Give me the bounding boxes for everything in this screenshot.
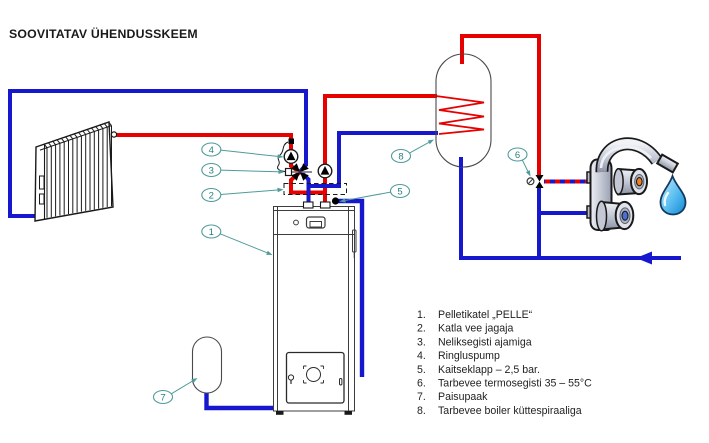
svg-text:Katla vee jagaja: Katla vee jagaja: [438, 323, 513, 335]
svg-text:Pelletikatel „PELLE“: Pelletikatel „PELLE“: [438, 309, 533, 321]
svg-text:SOOVITATAV ÜHENDUSSKEEM: SOOVITATAV ÜHENDUSSKEEM: [9, 26, 198, 41]
svg-text:Kaitseklapp – 2,5 bar.: Kaitseklapp – 2,5 bar.: [438, 364, 540, 376]
svg-text:8: 8: [398, 151, 403, 162]
svg-text:Tarbevee boiler küttespiraalig: Tarbevee boiler küttespiraaliga: [438, 405, 582, 417]
svg-text:8.: 8.: [417, 405, 426, 417]
svg-text:6: 6: [515, 150, 520, 161]
svg-text:3.: 3.: [417, 336, 426, 348]
svg-text:2: 2: [209, 190, 214, 201]
svg-text:Ringluspump: Ringluspump: [438, 350, 500, 362]
svg-text:4.: 4.: [417, 350, 426, 362]
svg-text:7.: 7.: [417, 391, 426, 403]
svg-text:5.: 5.: [417, 364, 426, 376]
svg-text:2.: 2.: [417, 323, 426, 335]
svg-text:7: 7: [160, 392, 165, 403]
svg-text:3: 3: [209, 165, 214, 176]
svg-text:Paisupaak: Paisupaak: [438, 391, 488, 403]
svg-text:6.: 6.: [417, 378, 426, 390]
svg-text:1.: 1.: [417, 309, 426, 321]
svg-text:Tarbevee termosegisti 35 – 55°: Tarbevee termosegisti 35 – 55°C: [438, 378, 592, 390]
svg-text:5: 5: [397, 186, 402, 197]
svg-text:1: 1: [209, 227, 214, 238]
svg-text:Neliksegisti ajamiga: Neliksegisti ajamiga: [438, 336, 532, 348]
svg-text:4: 4: [209, 145, 214, 156]
